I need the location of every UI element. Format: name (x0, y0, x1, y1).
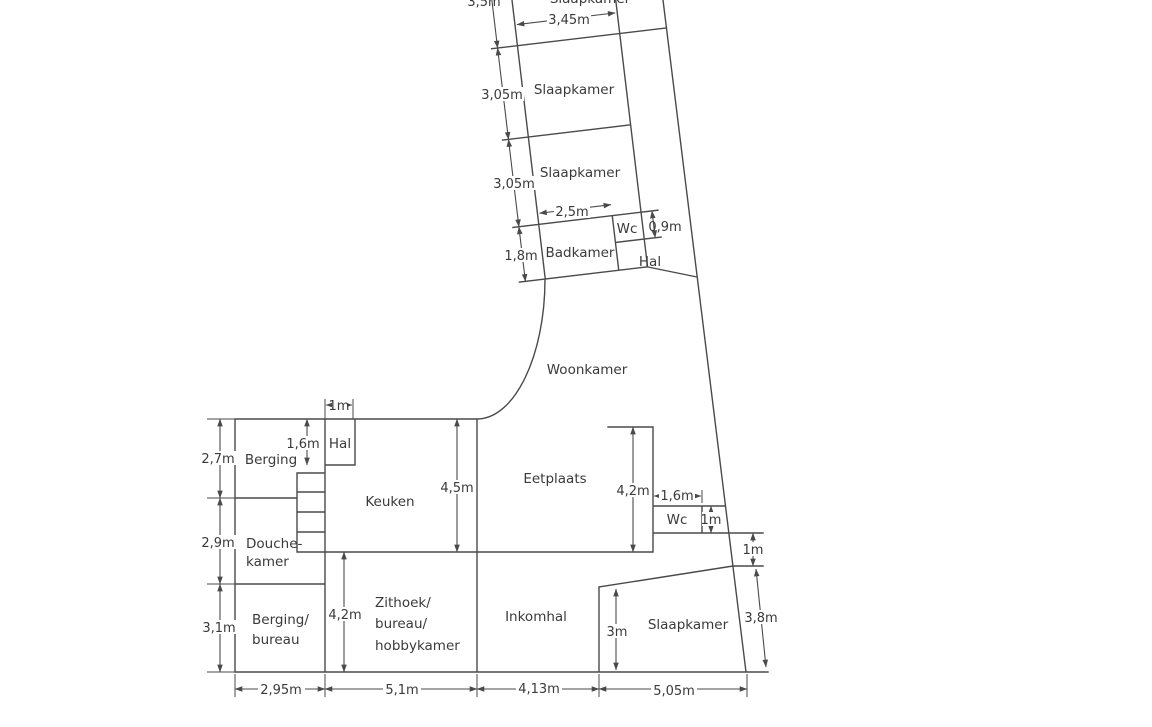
dim-label-wc-upper-width: 0,9m (648, 220, 681, 235)
dim-label-top-room-height: 3,5m (467, 0, 500, 10)
dim-label-bottom-3: 4,13m (518, 682, 560, 697)
dim-label-bottom-4: 5,05m (653, 684, 695, 699)
dim-label-wc-lower-width: 1,6m (660, 489, 693, 504)
room-label-wc-lower: Wc (667, 512, 688, 528)
room-label-slaapkamer-1: Slaapkamer (534, 82, 615, 98)
dim-label-slaapkamer-height: 3m (607, 625, 628, 640)
dim-label-badkamer-width: 2,5m (555, 205, 588, 220)
dim-label-hal-height: 1,6m (286, 437, 319, 452)
dim-label-douche-height: 2,9m (201, 536, 234, 551)
room-label-berging-bureau-line2: bureau (252, 632, 300, 648)
dim-label-berging-height: 2,7m (201, 452, 234, 467)
dim-label-berging-bureau-height: 3,1m (202, 621, 235, 636)
room-label-douchekamer-line2: kamer (246, 554, 289, 570)
room-label-slaapkamer-top: Slaapkamer (550, 0, 631, 7)
dim-label-bottom-1: 2,95m (260, 683, 302, 698)
room-label-hal: Hal (329, 436, 351, 452)
room-label-inkomhal: Inkomhal (505, 609, 567, 625)
room-label-zithoek-line3: hobbykamer (375, 638, 460, 654)
floor-plan-drawing: 3,5m 3,45m 3,05m 3,05m 2,5m 0,9m 1,8m 1m… (0, 0, 1152, 727)
room-label-wc-upper: Wc (617, 221, 638, 237)
dim-label-slaapkamer-right: 3,8m (744, 611, 777, 626)
dim-label-bottom-2: 5,1m (385, 683, 418, 698)
floor-plan-page: 3,5m 3,45m 3,05m 3,05m 2,5m 0,9m 1,8m 1m… (0, 0, 1152, 727)
upper-wing (483, 0, 694, 282)
room-label-slaapkamer-3: Slaapkamer (648, 617, 729, 633)
room-label-woonkamer: Woonkamer (547, 362, 628, 378)
dimension-labels: 3,5m 3,45m 3,05m 3,05m 2,5m 0,9m 1,8m 1m… (200, 0, 780, 699)
dim-label-wc-lower-height: 1m (701, 513, 722, 528)
room-label-douchekamer-line1: Douche- (246, 536, 302, 552)
dim-label-eetplaats-height: 4,2m (616, 484, 649, 499)
dim-label-hal-top-width: 1m (329, 399, 350, 414)
room-label-zithoek-line2: bureau/ (375, 616, 428, 632)
room-label-badkamer: Badkamer (546, 245, 615, 261)
dim-label-s2-height: 3,05m (493, 177, 535, 192)
room-label-slaapkamer-2: Slaapkamer (540, 165, 621, 181)
room-label-keuken: Keuken (365, 494, 414, 510)
dim-label-zithoek-height: 4,2m (328, 608, 361, 623)
dim-label-s1-height: 3,05m (481, 88, 523, 103)
dim-label-keuken-height: 4,5m (440, 481, 473, 496)
upper-wing-walls (485, 0, 694, 282)
dim-label-right-offset: 1m (743, 543, 764, 558)
room-label-hal-upper: Hal (639, 254, 661, 270)
room-label-berging: Berging (245, 452, 297, 468)
dim-label-top-room-width: 3,45m (548, 13, 590, 28)
dim-label-badkamer-height: 1,8m (504, 249, 537, 264)
room-label-berging-bureau-line1: Berging/ (252, 612, 309, 628)
room-label-eetplaats: Eetplaats (523, 471, 586, 487)
room-label-zithoek-line1: Zithoek/ (375, 595, 431, 611)
